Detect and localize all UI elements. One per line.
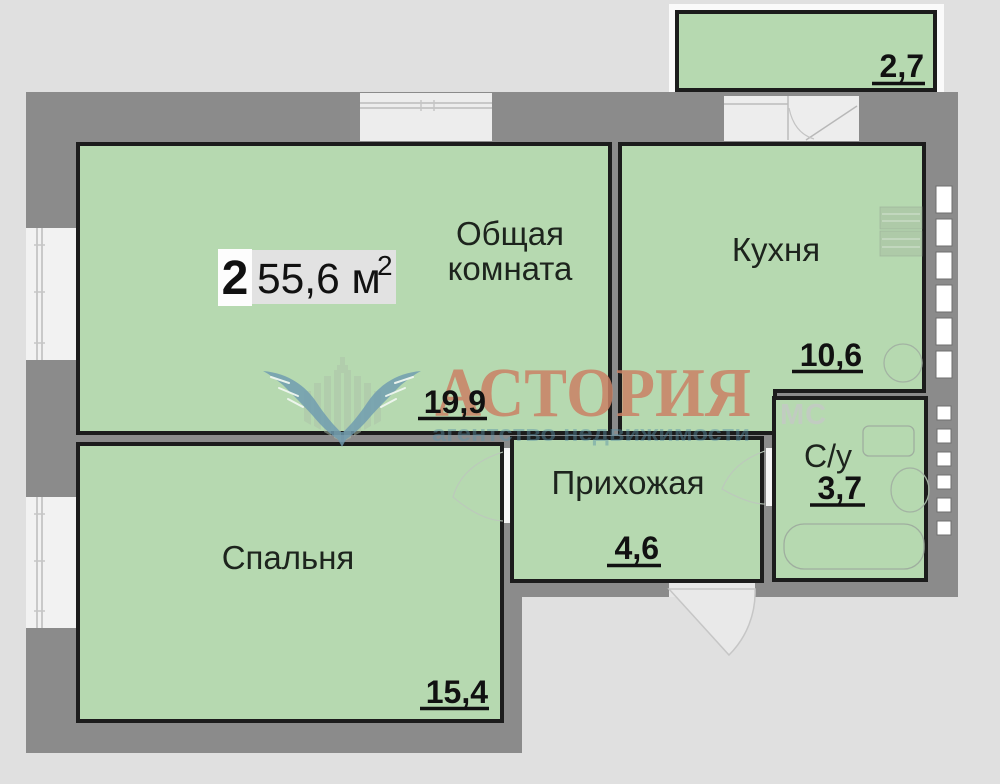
svg-text:2: 2 — [377, 250, 393, 281]
svg-text:3,7: 3,7 — [818, 470, 862, 506]
svg-text:15,4: 15,4 — [426, 674, 488, 710]
svg-text:2,7: 2,7 — [880, 48, 924, 84]
svg-text:4,6: 4,6 — [615, 530, 659, 566]
svg-text:19,9: 19,9 — [424, 384, 486, 420]
svg-text:Кухня: Кухня — [732, 231, 820, 268]
svg-text:комната: комната — [448, 250, 573, 287]
svg-text:Спальня: Спальня — [222, 539, 355, 576]
svg-text:С/у: С/у — [804, 438, 852, 474]
svg-text:Прихожая: Прихожая — [552, 464, 705, 501]
svg-text:МС: МС — [780, 399, 827, 431]
svg-text:Общая: Общая — [456, 215, 564, 252]
svg-text:агентство недвижимости: агентство недвижимости — [432, 421, 750, 446]
svg-text:2: 2 — [222, 252, 249, 305]
svg-text:55,6 м: 55,6 м — [257, 256, 381, 303]
svg-text:10,6: 10,6 — [800, 337, 862, 373]
